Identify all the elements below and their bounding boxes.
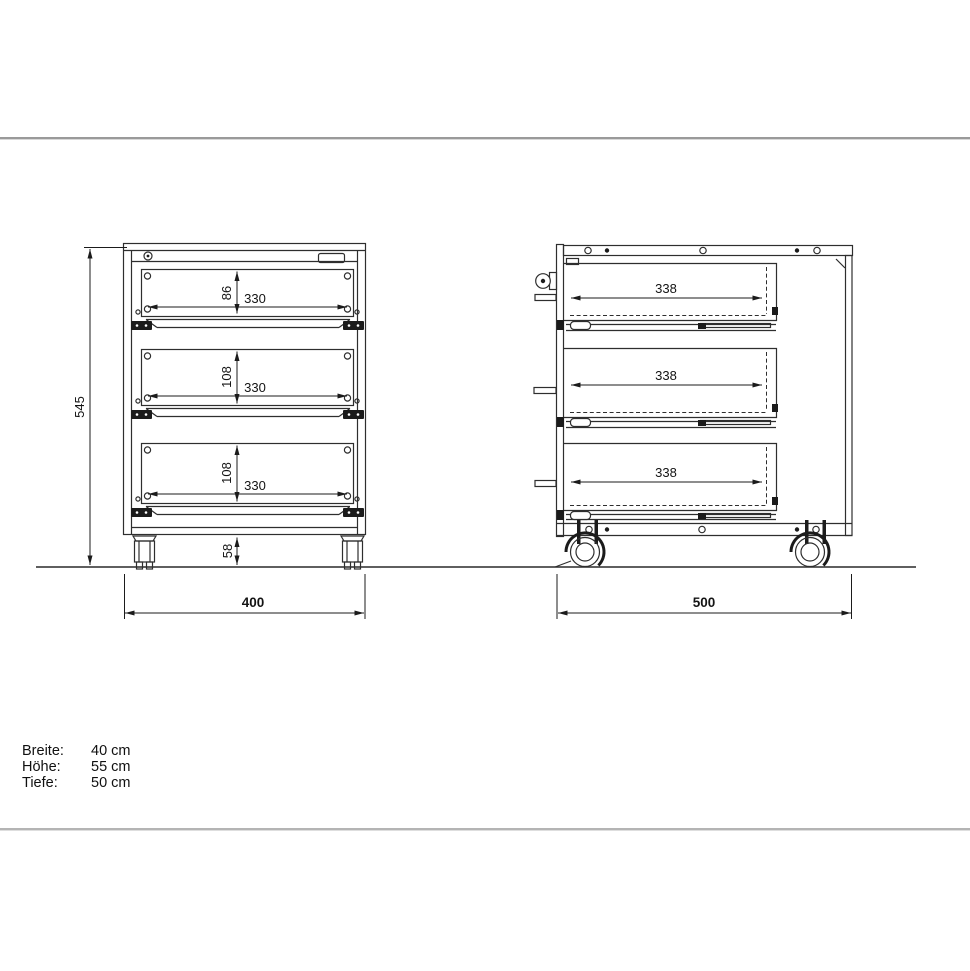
- page: 86 330 108 330: [0, 0, 970, 971]
- shelf-pegs: [534, 295, 556, 487]
- spec-value-width: 40 cm: [91, 743, 131, 759]
- dimension-total-depth: 500: [557, 574, 852, 619]
- dim-label-drawer3-width: 330: [244, 478, 266, 493]
- spec-value-height: 55 cm: [91, 759, 131, 775]
- bottom-panel-holes: [586, 526, 819, 532]
- dim-label-total-width: 400: [242, 595, 265, 610]
- dim-label-base-height: 58: [220, 544, 235, 558]
- drawer-side-3: 338: [557, 444, 778, 521]
- dimension-total-width: 400: [125, 574, 366, 619]
- caster-side-right: [791, 533, 829, 567]
- cam-screw-icon: [144, 252, 152, 260]
- caster-front-left: [133, 536, 156, 569]
- spec-label-width: Breite:: [22, 743, 91, 759]
- lock-cylinder-icon: [536, 273, 557, 290]
- drawer-front-2: 108 330: [131, 350, 364, 420]
- dim-label-side-drawer3-depth: 338: [655, 465, 677, 480]
- drawer-side-1: 338: [557, 264, 778, 331]
- top-panel-holes: [585, 247, 820, 253]
- cabinet-body-side: [557, 245, 853, 537]
- spec-row-height: Höhe: 55 cm: [22, 759, 131, 775]
- dimension-base-height: 58: [220, 538, 237, 566]
- spec-row-width: Breite: 40 cm: [22, 743, 131, 759]
- caster-front-right: [341, 536, 364, 569]
- dimension-specs: Breite: 40 cm Höhe: 55 cm Tiefe: 50 cm: [22, 743, 131, 791]
- dimension-total-height: 545: [72, 248, 127, 566]
- dim-label-side-drawer2-depth: 338: [655, 368, 677, 383]
- spec-label-depth: Tiefe:: [22, 775, 91, 791]
- dim-label-drawer2-height: 108: [219, 366, 234, 388]
- technical-drawing: 86 330 108 330: [0, 0, 970, 971]
- dim-label-total-depth: 500: [693, 595, 716, 610]
- drawer-slide-3: [557, 510, 776, 520]
- drawer-front-1: 86 330: [131, 270, 364, 331]
- dim-label-drawer2-width: 330: [244, 380, 266, 395]
- spec-label-height: Höhe:: [22, 759, 91, 775]
- front-view: 86 330 108 330: [72, 244, 366, 620]
- drawer-slide-2: [557, 417, 776, 428]
- dim-label-drawer1-height: 86: [219, 286, 234, 300]
- dim-label-drawer1-width: 330: [244, 291, 266, 306]
- dim-label-drawer3-height: 108: [219, 462, 234, 484]
- dim-label-total-height: 545: [72, 396, 87, 418]
- drawer-slide-1: [557, 320, 776, 331]
- spec-row-depth: Tiefe: 50 cm: [22, 775, 131, 791]
- drawer-side-2: 338: [557, 349, 778, 428]
- caster-side-left: [555, 533, 604, 567]
- drawer-front-3: 108 330: [131, 444, 364, 518]
- spec-value-depth: 50 cm: [91, 775, 131, 791]
- dim-label-side-drawer1-depth: 338: [655, 281, 677, 296]
- side-view: 338 338: [534, 245, 853, 620]
